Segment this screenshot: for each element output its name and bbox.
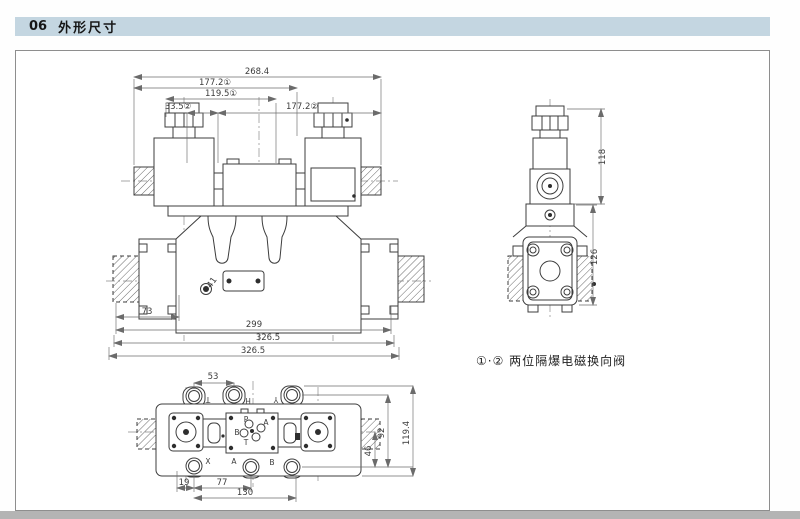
section-header: 06 外形尺寸 (15, 17, 770, 36)
dim-77: 77 (217, 478, 228, 488)
front-view-drawing: 41 268.4 177.2① 119.5① 33.5② 177.2② (106, 67, 431, 360)
legend-note: ①·② 两位隔爆电磁换向阀 (476, 352, 626, 369)
dim-299: 299 (246, 320, 262, 330)
page-bottom-edge (0, 511, 800, 519)
page: 06 外形尺寸 (0, 0, 800, 519)
dim-326-a: 326.5 (256, 333, 280, 343)
plug-left (113, 256, 139, 302)
knob-left-bottom (137, 419, 156, 449)
pilot-valve-body (223, 164, 296, 206)
dim-119-4: 119.4 (402, 421, 412, 445)
dim-326-b: 326.5 (241, 346, 265, 356)
dim-46: 46 (364, 446, 374, 457)
dim-118: 118 (598, 149, 608, 165)
port-label-top-left: T (205, 395, 211, 404)
section-title: 外形尺寸 (58, 17, 118, 36)
dim-33-5: 33.5② (165, 102, 192, 112)
bottom-view-drawing: T H Y X A B (128, 372, 413, 502)
plug-right (398, 256, 424, 302)
port-label-x: X (205, 457, 210, 466)
nameplate (311, 168, 355, 201)
dim-130: 130 (237, 488, 253, 498)
dim-119-5: 119.5① (205, 89, 237, 99)
face-port-b: B (234, 428, 239, 437)
port-label-top-mid: H (245, 396, 251, 405)
dim-total-width: 268.4 (245, 67, 269, 77)
manual-override-left (134, 167, 154, 195)
solenoid-side (533, 138, 567, 169)
side-view-drawing: 118 126 (508, 99, 608, 319)
face-port-p: P (244, 415, 249, 424)
manual-override-right (361, 167, 381, 195)
dim-177-1: 177.2① (199, 78, 231, 88)
dim-126: 126 (590, 249, 600, 265)
face-port-a: A (263, 418, 269, 427)
dim-177-2: 177.2② (286, 102, 318, 112)
face-port-t: T (243, 438, 249, 447)
dim-19: 19 (179, 478, 190, 488)
port-label-a: A (231, 457, 237, 466)
solenoid-left (154, 138, 214, 206)
dim-53: 53 (208, 372, 219, 382)
dimension-drawing: 41 268.4 177.2① 119.5① 33.5② 177.2② (16, 51, 769, 508)
main-valve-body (176, 216, 361, 333)
dim-73: 73 (142, 307, 153, 317)
dim-92: 92 (377, 428, 387, 439)
drawing-panel: 41 268.4 177.2① 119.5① 33.5② 177.2② (15, 50, 770, 511)
port-label-b: B (269, 458, 274, 467)
section-number: 06 (29, 19, 47, 34)
port-label-top-right: Y (273, 395, 279, 404)
